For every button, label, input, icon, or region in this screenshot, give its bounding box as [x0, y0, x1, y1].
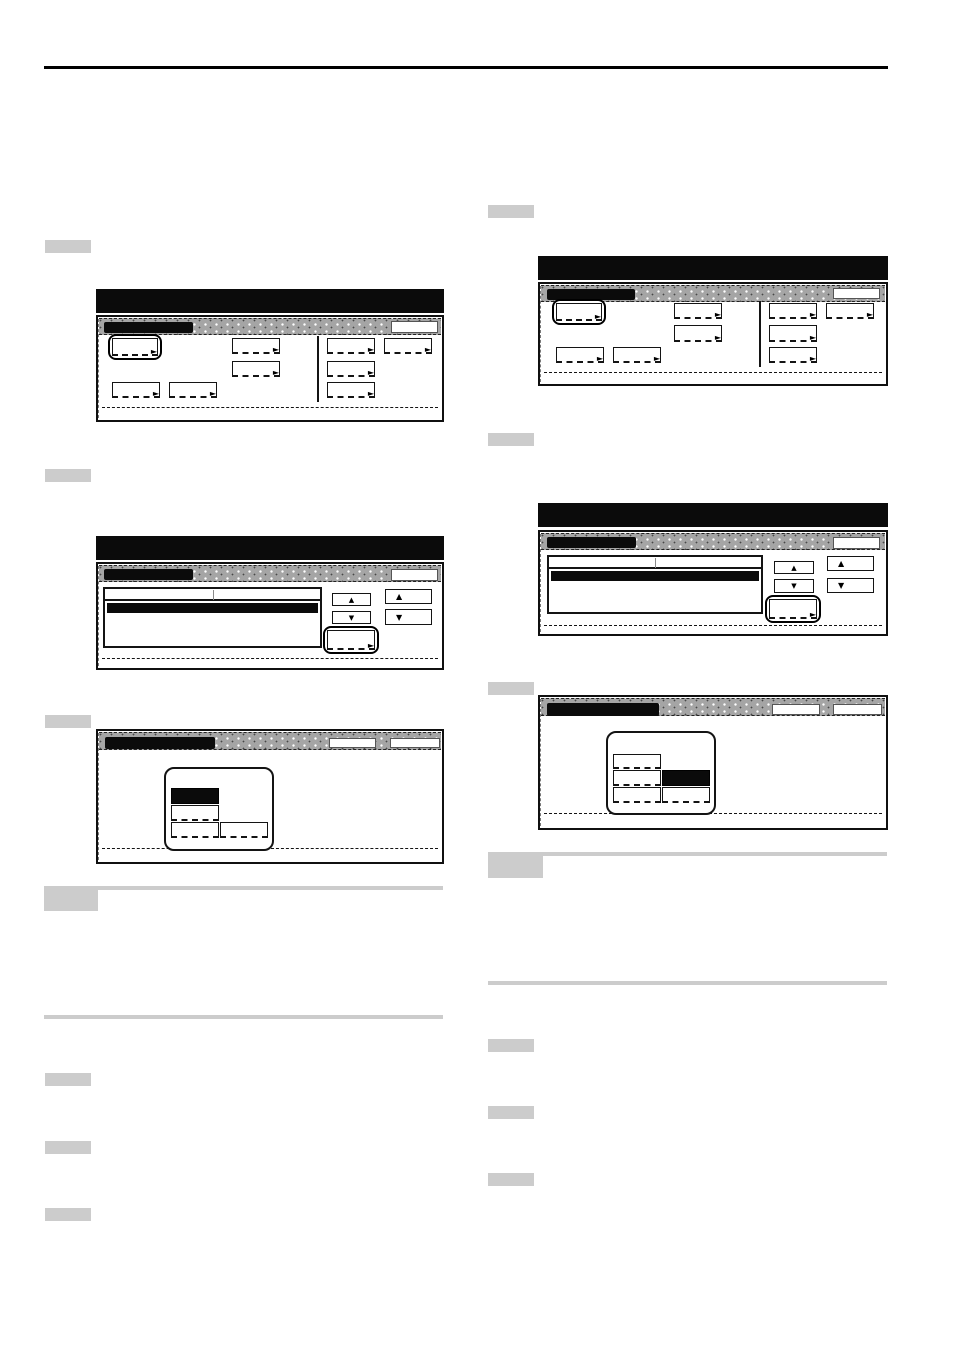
header-close-key[interactable]	[833, 704, 882, 715]
key-corner-arrow-icon: ►	[368, 346, 374, 354]
option-key-selected[interactable]	[662, 770, 710, 786]
statusline-separator	[102, 407, 438, 408]
option-key[interactable]	[613, 770, 661, 786]
screen-header	[541, 533, 885, 550]
function-key[interactable]: ►	[327, 338, 375, 354]
key-group-divider	[317, 336, 319, 402]
statusline-separator	[102, 658, 438, 659]
option-key[interactable]	[662, 787, 710, 803]
step-number-badge	[45, 1208, 91, 1221]
function-key[interactable]: ►	[169, 382, 217, 398]
step-number-badge	[488, 1039, 534, 1052]
step-number-badge	[488, 433, 534, 446]
cursor-down-key[interactable]: ▼	[774, 579, 814, 593]
function-key[interactable]: ►	[769, 325, 817, 342]
statusline-separator	[544, 372, 882, 373]
cursor-down-key[interactable]: ▼	[332, 611, 371, 624]
key-corner-arrow-icon: ►	[273, 346, 279, 354]
function-key[interactable]: ►	[327, 361, 375, 377]
header-close-key[interactable]	[390, 738, 440, 748]
note-label-badge	[488, 852, 543, 878]
statusline-separator	[544, 813, 882, 814]
function-key[interactable]: ►	[674, 303, 722, 319]
screen-title-label	[547, 703, 659, 716]
function-key[interactable]: ►	[826, 303, 874, 319]
key-corner-arrow-icon: ►	[715, 334, 721, 342]
up-arrow-icon: ▲	[349, 596, 354, 604]
step-number-badge	[45, 469, 91, 482]
header-back-key[interactable]	[329, 738, 376, 748]
screen-panel	[538, 695, 888, 830]
down-arrow-icon: ▼	[791, 582, 796, 590]
option-key-selected[interactable]	[171, 788, 219, 804]
key-corner-arrow-icon: ►	[867, 311, 873, 319]
screen-titlebar	[96, 536, 444, 560]
screen-title-label	[104, 322, 193, 333]
selected-function-key[interactable]: ►	[552, 299, 606, 325]
screen-panel	[96, 729, 444, 864]
selected-key-face: ►	[556, 303, 602, 321]
key-corner-arrow-icon: ►	[597, 355, 603, 363]
option-key[interactable]	[171, 805, 219, 821]
option-key[interactable]	[220, 822, 268, 838]
note-bottom-rule	[44, 1015, 443, 1019]
statusline-separator	[544, 625, 882, 626]
touchpanel-screenshot-option-select-1	[96, 729, 444, 864]
up-arrow-icon: ▲	[838, 559, 844, 568]
screen-title-label	[104, 569, 193, 580]
key-corner-arrow-icon: ►	[210, 390, 216, 398]
screen-title-label	[105, 737, 215, 749]
key-corner-arrow-icon: ►	[810, 355, 816, 363]
settings-list	[103, 587, 322, 648]
scroll-down-key[interactable]: ▼	[827, 578, 874, 593]
function-key[interactable]: ►	[674, 325, 722, 342]
settings-list	[547, 555, 763, 614]
screen-title-label	[547, 537, 636, 548]
key-group-divider	[759, 301, 761, 367]
screen-titlebar	[538, 256, 888, 280]
down-arrow-icon: ▼	[349, 614, 354, 622]
note-bottom-rule	[488, 981, 887, 985]
page-top-rule	[44, 66, 888, 69]
screen-panel: ▲ ▼ ▲ ▼ ►	[96, 562, 444, 670]
screen-panel: ► ► ► ► ► ► ► ► ►	[538, 282, 888, 386]
header-close-key[interactable]	[833, 288, 880, 299]
screen-titlebar	[96, 289, 444, 313]
key-corner-arrow-icon: ►	[654, 355, 660, 363]
key-corner-arrow-icon: ►	[810, 334, 816, 342]
step-number-badge	[45, 715, 91, 728]
touchpanel-screenshot-option-select-2	[538, 695, 888, 830]
scroll-up-key[interactable]: ▲	[385, 589, 432, 604]
screen-header	[99, 318, 441, 335]
function-key[interactable]: ►	[613, 347, 661, 363]
key-corner-arrow-icon: ►	[153, 390, 159, 398]
option-key[interactable]	[613, 754, 661, 769]
key-corner-arrow-icon: ►	[368, 642, 374, 650]
selected-change-key[interactable]: ►	[323, 626, 379, 654]
list-column-divider	[655, 558, 656, 568]
option-key[interactable]	[171, 822, 219, 838]
selected-key-face: ►	[112, 338, 158, 356]
option-group-panel	[164, 767, 274, 851]
scroll-down-key[interactable]: ▼	[385, 609, 432, 625]
selected-key-face: ►	[327, 630, 375, 650]
touchpanel-screenshot-function-menu-1: ► ► ► ► ► ► ► ► ►	[96, 289, 444, 422]
selected-function-key[interactable]: ►	[108, 334, 162, 360]
touchpanel-screenshot-function-menu-2: ► ► ► ► ► ► ► ► ►	[538, 256, 888, 386]
list-header-row	[105, 589, 320, 601]
step-number-badge	[488, 205, 534, 218]
function-key[interactable]: ►	[384, 338, 432, 354]
list-selected-row[interactable]	[107, 603, 318, 613]
function-key[interactable]: ►	[112, 382, 160, 398]
screen-header	[541, 698, 885, 716]
function-key[interactable]: ►	[769, 303, 817, 319]
screen-titlebar	[538, 503, 888, 527]
scroll-up-key[interactable]: ▲	[827, 556, 874, 571]
manual-page: ► ► ► ► ► ► ► ► ► ▲ ▼	[0, 0, 954, 1350]
key-corner-arrow-icon: ►	[368, 390, 374, 398]
key-corner-arrow-icon: ►	[425, 346, 431, 354]
step-number-badge	[488, 682, 534, 695]
step-number-badge	[488, 1173, 534, 1186]
function-key[interactable]: ►	[769, 347, 817, 363]
header-close-key[interactable]	[391, 569, 438, 581]
note-top-rule	[44, 886, 443, 890]
down-arrow-icon: ▼	[396, 613, 402, 622]
touchpanel-screenshot-setting-list-1: ▲ ▼ ▲ ▼ ►	[96, 536, 444, 670]
header-close-key[interactable]	[391, 321, 438, 333]
header-back-key[interactable]	[772, 704, 820, 715]
function-key[interactable]: ►	[556, 347, 604, 363]
list-column-divider	[213, 590, 214, 600]
selected-key-face: ►	[769, 599, 817, 619]
cursor-up-key[interactable]: ▲	[774, 561, 814, 574]
function-key[interactable]: ►	[327, 382, 375, 398]
header-close-key[interactable]	[833, 537, 880, 549]
down-arrow-icon: ▼	[838, 581, 844, 590]
option-group-panel	[606, 731, 716, 815]
step-number-badge	[45, 1073, 91, 1086]
key-corner-arrow-icon: ►	[273, 369, 279, 377]
step-number-badge	[488, 1106, 534, 1119]
screen-header	[99, 732, 441, 750]
up-arrow-icon: ▲	[396, 592, 402, 601]
function-key[interactable]: ►	[232, 361, 280, 377]
touchpanel-screenshot-setting-list-2: ▲ ▼ ▲ ▼ ►	[538, 503, 888, 636]
key-corner-arrow-icon: ►	[368, 369, 374, 377]
screen-panel: ▲ ▼ ▲ ▼ ►	[538, 530, 888, 636]
selected-change-key[interactable]: ►	[765, 595, 821, 623]
screen-header	[99, 565, 441, 582]
key-corner-arrow-icon: ►	[151, 348, 157, 356]
key-corner-arrow-icon: ►	[595, 313, 601, 321]
function-key[interactable]: ►	[232, 338, 280, 354]
note-label-badge	[44, 888, 98, 911]
list-header-row	[549, 557, 761, 569]
step-number-badge	[45, 240, 91, 253]
step-number-badge	[45, 1141, 91, 1154]
up-arrow-icon: ▲	[791, 564, 796, 572]
key-corner-arrow-icon: ►	[715, 311, 721, 319]
key-corner-arrow-icon: ►	[810, 311, 816, 319]
screen-panel: ► ► ► ► ► ► ► ► ►	[96, 315, 444, 422]
option-key[interactable]	[613, 787, 661, 803]
note-top-rule	[543, 852, 887, 856]
list-selected-row[interactable]	[551, 571, 759, 581]
cursor-up-key[interactable]: ▲	[332, 593, 371, 606]
key-corner-arrow-icon: ►	[810, 611, 816, 619]
